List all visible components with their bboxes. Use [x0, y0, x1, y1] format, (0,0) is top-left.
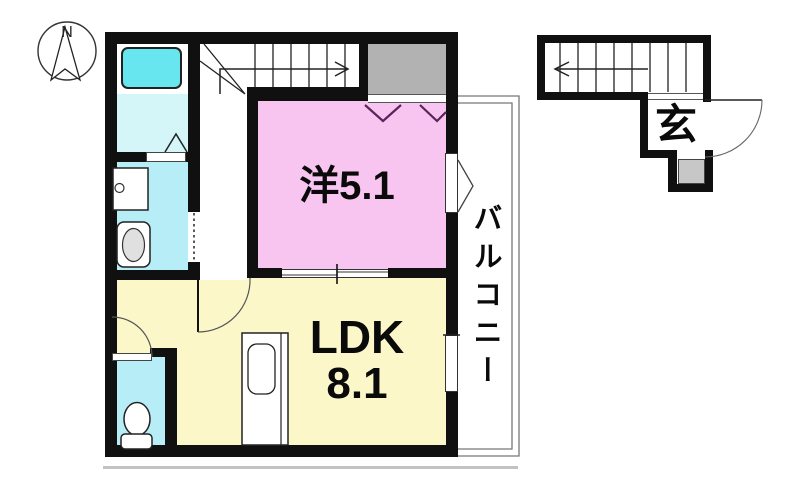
balcony-label: バルコニー: [464, 188, 506, 408]
linework-layer: N: [0, 0, 800, 480]
entry-stairs-arrow: [555, 62, 648, 76]
ldk-room-label: LDK 8.1: [257, 314, 457, 407]
compass-north-label: N: [61, 24, 73, 41]
washbasin: [113, 168, 148, 210]
plan-shadow-line: [103, 466, 518, 469]
bath-door-mark: [165, 134, 187, 152]
western-window-marks: [365, 105, 446, 121]
sliding-door-tracks: [282, 264, 388, 284]
ldk-name: LDK: [257, 314, 457, 361]
entrance-door: [705, 100, 762, 157]
ldk-door: [198, 278, 250, 332]
entry-staircase: [560, 43, 686, 92]
compass: N: [38, 22, 96, 80]
toilet-door-swing: [112, 317, 152, 357]
western-room-label: 洋5.1: [252, 162, 442, 210]
entrance-label: 玄: [646, 101, 706, 149]
floor-plan-canvas: N: [0, 0, 800, 480]
ldk-size: 8.1: [257, 361, 457, 407]
toilet: [121, 403, 152, 450]
washing-machine: [117, 222, 150, 267]
